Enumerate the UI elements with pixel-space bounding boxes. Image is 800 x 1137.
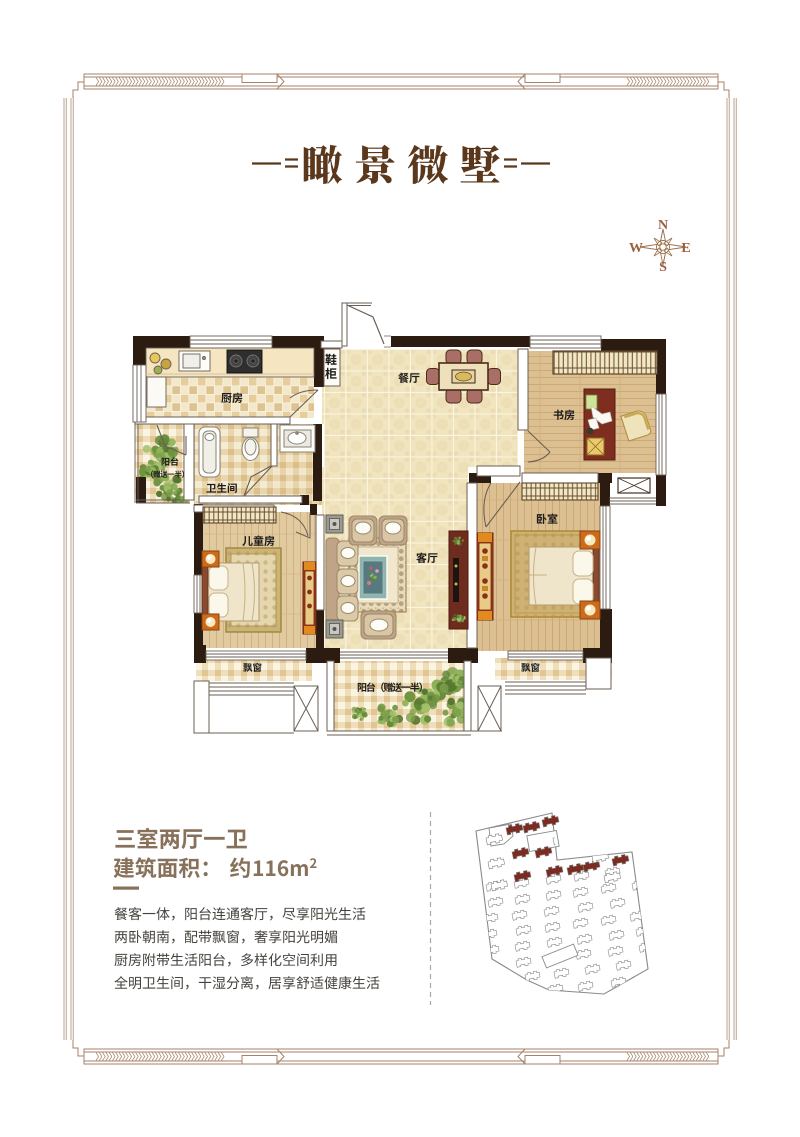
svg-text:N: N (658, 218, 668, 233)
svg-text:S: S (659, 260, 667, 275)
svg-text:E: E (681, 241, 690, 256)
svg-text:W: W (629, 241, 643, 256)
